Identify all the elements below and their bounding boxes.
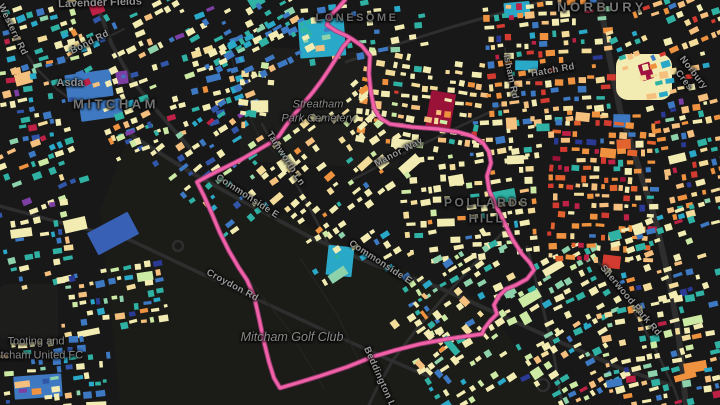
- map-canvas[interactable]: [0, 0, 720, 405]
- map-viewport[interactable]: Lavender Fields MITCHAM LONESOME NORBURY…: [0, 0, 720, 405]
